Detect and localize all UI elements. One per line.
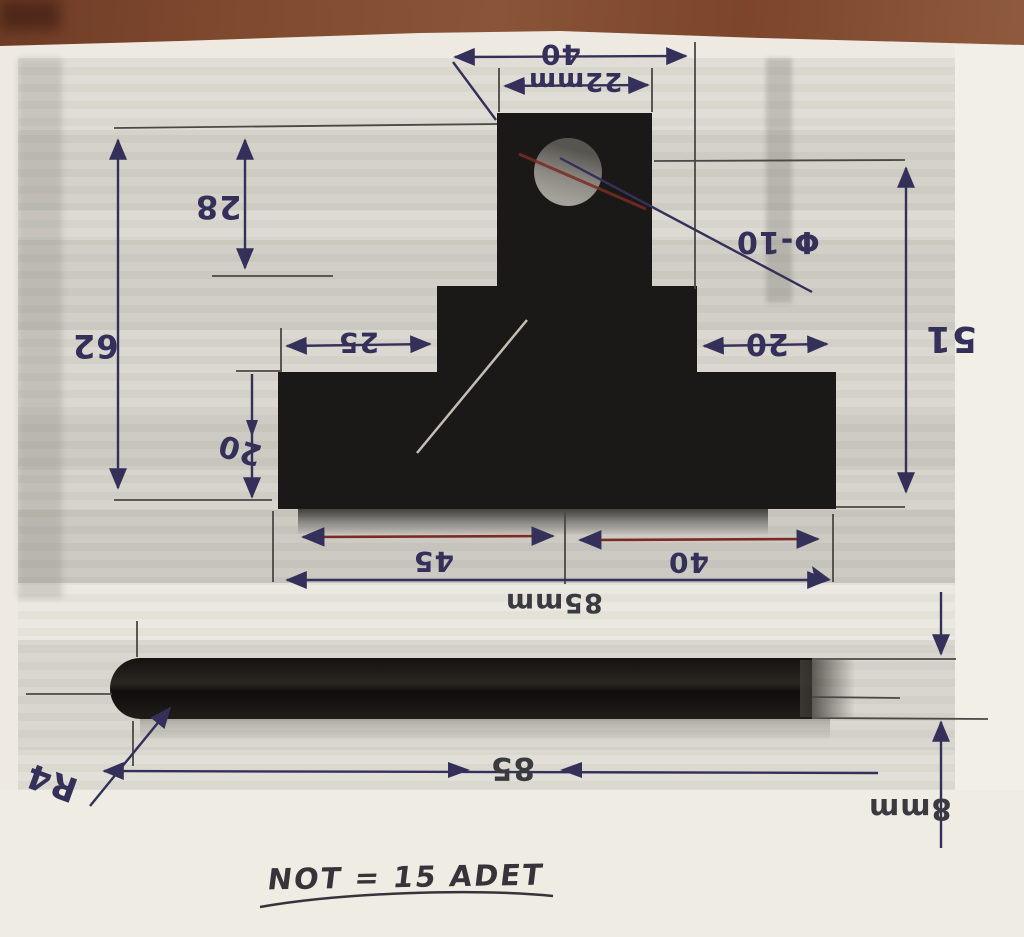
dim-base-seg-left: 45 <box>413 545 454 578</box>
dim-bar-length: 85 <box>490 750 535 786</box>
dim-left-height: 62 <box>72 327 119 365</box>
wood-shadow <box>0 0 60 30</box>
dim-bar-thickness: 8mm <box>868 792 952 826</box>
photo-of-technical-drawing: 40 22mm 28 62 Φ-10 25 20 51 20 45 40 85m… <box>0 0 1024 937</box>
dim-right-height: 51 <box>925 318 977 359</box>
reference-lines <box>26 42 988 766</box>
dim-base-seg-right: 40 <box>668 546 709 579</box>
scratch-mark <box>417 320 527 453</box>
quantity-note: NOT = 15 ADET <box>266 858 547 897</box>
red-pen-lines <box>303 154 818 540</box>
dim-tab-width: 22mm <box>528 66 622 96</box>
dim-base-total: 85mm <box>505 587 603 618</box>
dim-tab-height: 28 <box>195 188 242 226</box>
dim-hole-diameter: Φ-10 <box>736 224 820 259</box>
dim-step-right: 20 <box>745 326 789 361</box>
dim-step-left: 25 <box>338 326 379 359</box>
paper-sheet: 40 22mm 28 62 Φ-10 25 20 51 20 45 40 85m… <box>0 0 1024 937</box>
